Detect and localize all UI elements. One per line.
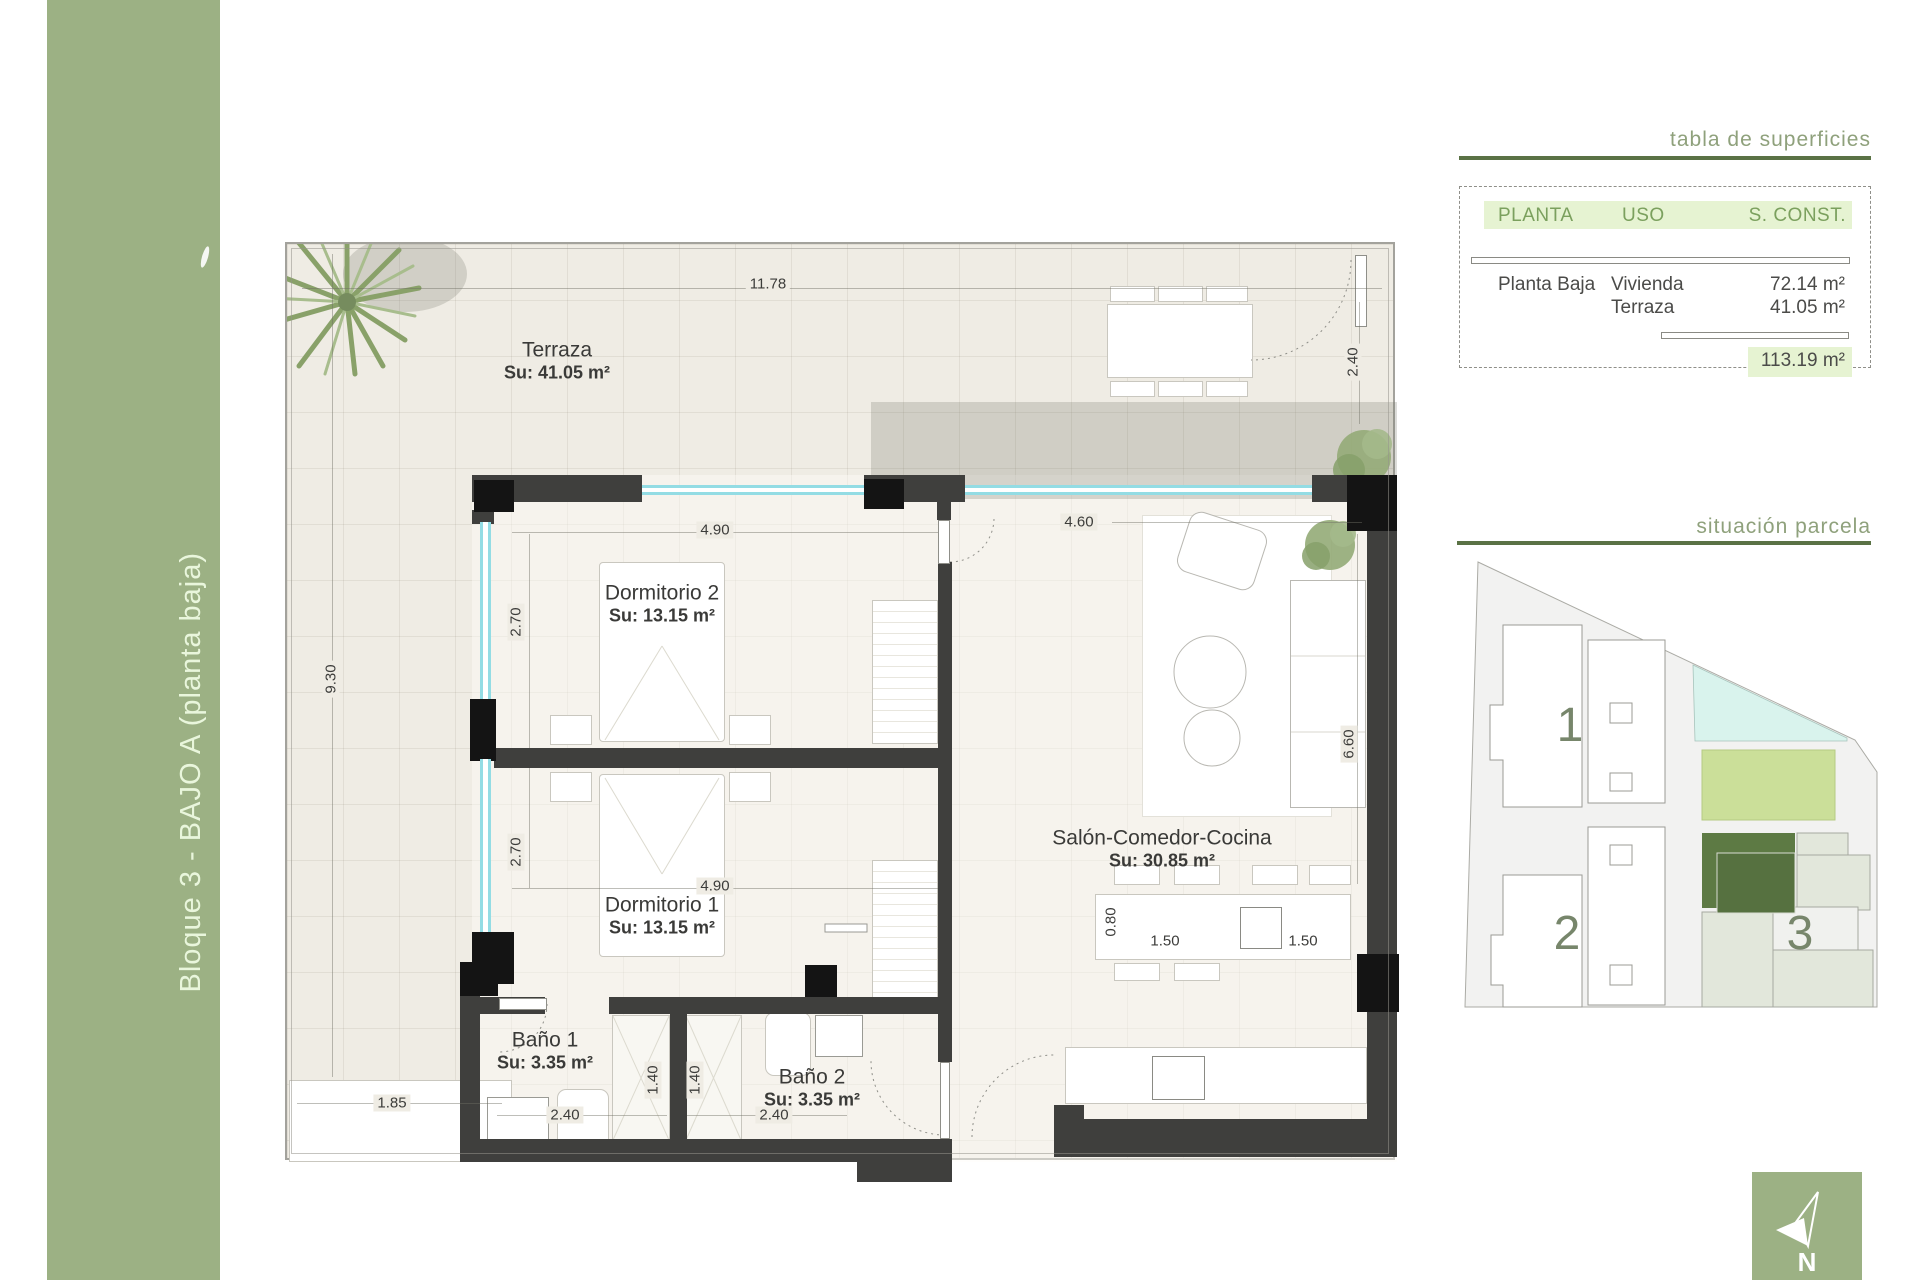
wall-segment: [937, 502, 951, 520]
dim-dorm2-width: 4.90: [696, 522, 733, 539]
dim-total-width: 11.78: [746, 276, 790, 293]
nightstand: [550, 772, 592, 802]
room-label-terraza: Terraza Su: 41.05 m²: [504, 339, 610, 384]
unit-title: Bloque 3 - BAJO A (planta baja): [175, 552, 208, 992]
dim-island-left: 1.50: [1146, 933, 1183, 950]
chair: [1110, 381, 1155, 397]
surfaces-title: tabla de superficies: [1670, 128, 1871, 152]
room-label-dormitorio2: Dormitorio 2 Su: 13.15 m²: [605, 582, 719, 627]
north-box: N: [1752, 1172, 1862, 1280]
floor-plan: 11.78 9.30 2.40 4.90 2.70 4.90 2.70 4.60…: [285, 242, 1395, 1160]
col-sconst: S. CONST.: [1749, 205, 1846, 227]
hob: [1240, 907, 1282, 949]
window: [642, 485, 864, 495]
sink: [1152, 1056, 1205, 1100]
wall-segment: [1082, 1119, 1397, 1157]
block2-number: 2: [1554, 907, 1581, 960]
palm-tree-icon: [287, 244, 467, 374]
surfaces-panel: tabla de superficies PLANTA USO S. CONST…: [1459, 128, 1871, 378]
wall-segment: [938, 1014, 952, 1062]
dim-salon-height: 6.60: [1341, 725, 1358, 762]
col-planta: PLANTA: [1498, 205, 1574, 227]
pillar: [1357, 954, 1399, 1012]
door-leaf: [938, 520, 950, 564]
dim-terrace-left: 9.30: [323, 660, 340, 697]
room-label-salon: Salón-Comedor-Cocina Su: 30.85 m²: [1052, 827, 1271, 872]
dim-island-right: 1.50: [1284, 933, 1321, 950]
dim-bano2-shower: 1.40: [687, 1061, 704, 1098]
kitchen-counter: [1065, 1047, 1367, 1104]
dim-bano1-shower: 1.40: [645, 1061, 662, 1098]
block3-number: 3: [1787, 907, 1814, 960]
dim-dorm2-height: 2.70: [508, 603, 525, 640]
page: Bloque 3 - BAJO A (planta baja): [0, 0, 1920, 1280]
table-header-row: PLANTA USO S. CONST.: [1484, 201, 1852, 229]
cell-uso: Terraza: [1611, 297, 1674, 319]
wall-segment: [670, 1014, 687, 1142]
bar-stool: [1114, 963, 1160, 981]
pillar: [864, 479, 904, 509]
block3-part: [1797, 855, 1870, 910]
pillar: [460, 962, 498, 996]
dim-planter: 1.85: [373, 1095, 410, 1112]
decorative-fleck: [199, 246, 211, 269]
surfaces-table: PLANTA USO S. CONST. Planta Baja Viviend…: [1459, 186, 1871, 368]
dimension-line: [1112, 522, 1362, 523]
dim-dorm1-width: 4.90: [696, 878, 733, 895]
block3-part: [1797, 833, 1848, 855]
wall-segment: [494, 748, 938, 768]
garden: [1702, 750, 1835, 820]
room-label-bano2: Baño 2 Su: 3.35 m²: [764, 1066, 860, 1111]
nightstand: [729, 715, 771, 745]
dimension-line: [302, 288, 1382, 289]
nightstand: [729, 772, 771, 802]
cell-sconst: 41.05 m²: [1770, 297, 1845, 319]
door-leaf: [499, 998, 547, 1010]
pool: [1693, 665, 1847, 741]
col-uso: USO: [1622, 205, 1665, 227]
bar-stool: [1174, 963, 1220, 981]
room-label-dormitorio1: Dormitorio 1 Su: 13.15 m²: [605, 894, 719, 939]
sofa: [1290, 580, 1366, 808]
total-bar: [1661, 332, 1849, 339]
highlighted-unit-inner: [1717, 853, 1795, 913]
bar-stool: [1309, 865, 1351, 885]
dim-terrace-right: 2.40: [1345, 343, 1362, 380]
chair: [1206, 381, 1248, 397]
dimension-line: [1357, 534, 1358, 884]
cell-uso: Vivienda: [1611, 274, 1684, 296]
dimension-line: [529, 534, 530, 748]
total-value: 113.19 m²: [1761, 350, 1845, 372]
site-panel: situación parcela: [1457, 515, 1871, 1020]
kitchen-island: [1095, 894, 1351, 960]
wall-segment: [460, 982, 480, 1162]
cell-sconst: 72.14 m²: [1770, 274, 1845, 296]
washbasin: [815, 1015, 863, 1057]
window: [480, 759, 491, 932]
divider-bar: [1471, 257, 1850, 264]
wardrobe: [872, 600, 938, 744]
wall-segment: [857, 1162, 952, 1182]
block3-part: [1702, 912, 1773, 1007]
wall-segment: [938, 562, 952, 1014]
site-title: situación parcela: [1696, 515, 1871, 539]
dimension-line: [529, 768, 530, 888]
dining-table: [1107, 304, 1253, 378]
dim-bano1-width: 2.40: [546, 1107, 583, 1124]
room-label-bano1: Baño 1 Su: 3.35 m²: [497, 1029, 593, 1074]
door-leaf: [1355, 255, 1367, 327]
pillar: [470, 699, 496, 761]
wall-segment: [1367, 475, 1397, 1157]
dim-salon-width: 4.60: [1060, 514, 1097, 531]
site-map: 1 2 3: [1460, 545, 1880, 1020]
dim-dorm1-height: 2.70: [508, 833, 525, 870]
wall-segment: [609, 997, 952, 1014]
chair: [1158, 381, 1203, 397]
block1-number: 1: [1557, 699, 1584, 752]
cell-planta: Planta Baja: [1498, 274, 1595, 296]
wall-segment: [1054, 1105, 1084, 1157]
dim-island-depth: 0.80: [1103, 903, 1120, 940]
pillar: [474, 480, 514, 512]
door-leaf: [940, 1062, 950, 1139]
pillar: [805, 965, 837, 997]
title-rule: [1459, 156, 1871, 160]
sidebar-banner: Bloque 3 - BAJO A (planta baja): [47, 0, 220, 1280]
window: [480, 522, 491, 699]
north-label: N: [1752, 1247, 1862, 1278]
nightstand: [550, 715, 592, 745]
window: [965, 485, 1312, 495]
wardrobe: [872, 860, 938, 1004]
wall-segment: [460, 1139, 952, 1162]
